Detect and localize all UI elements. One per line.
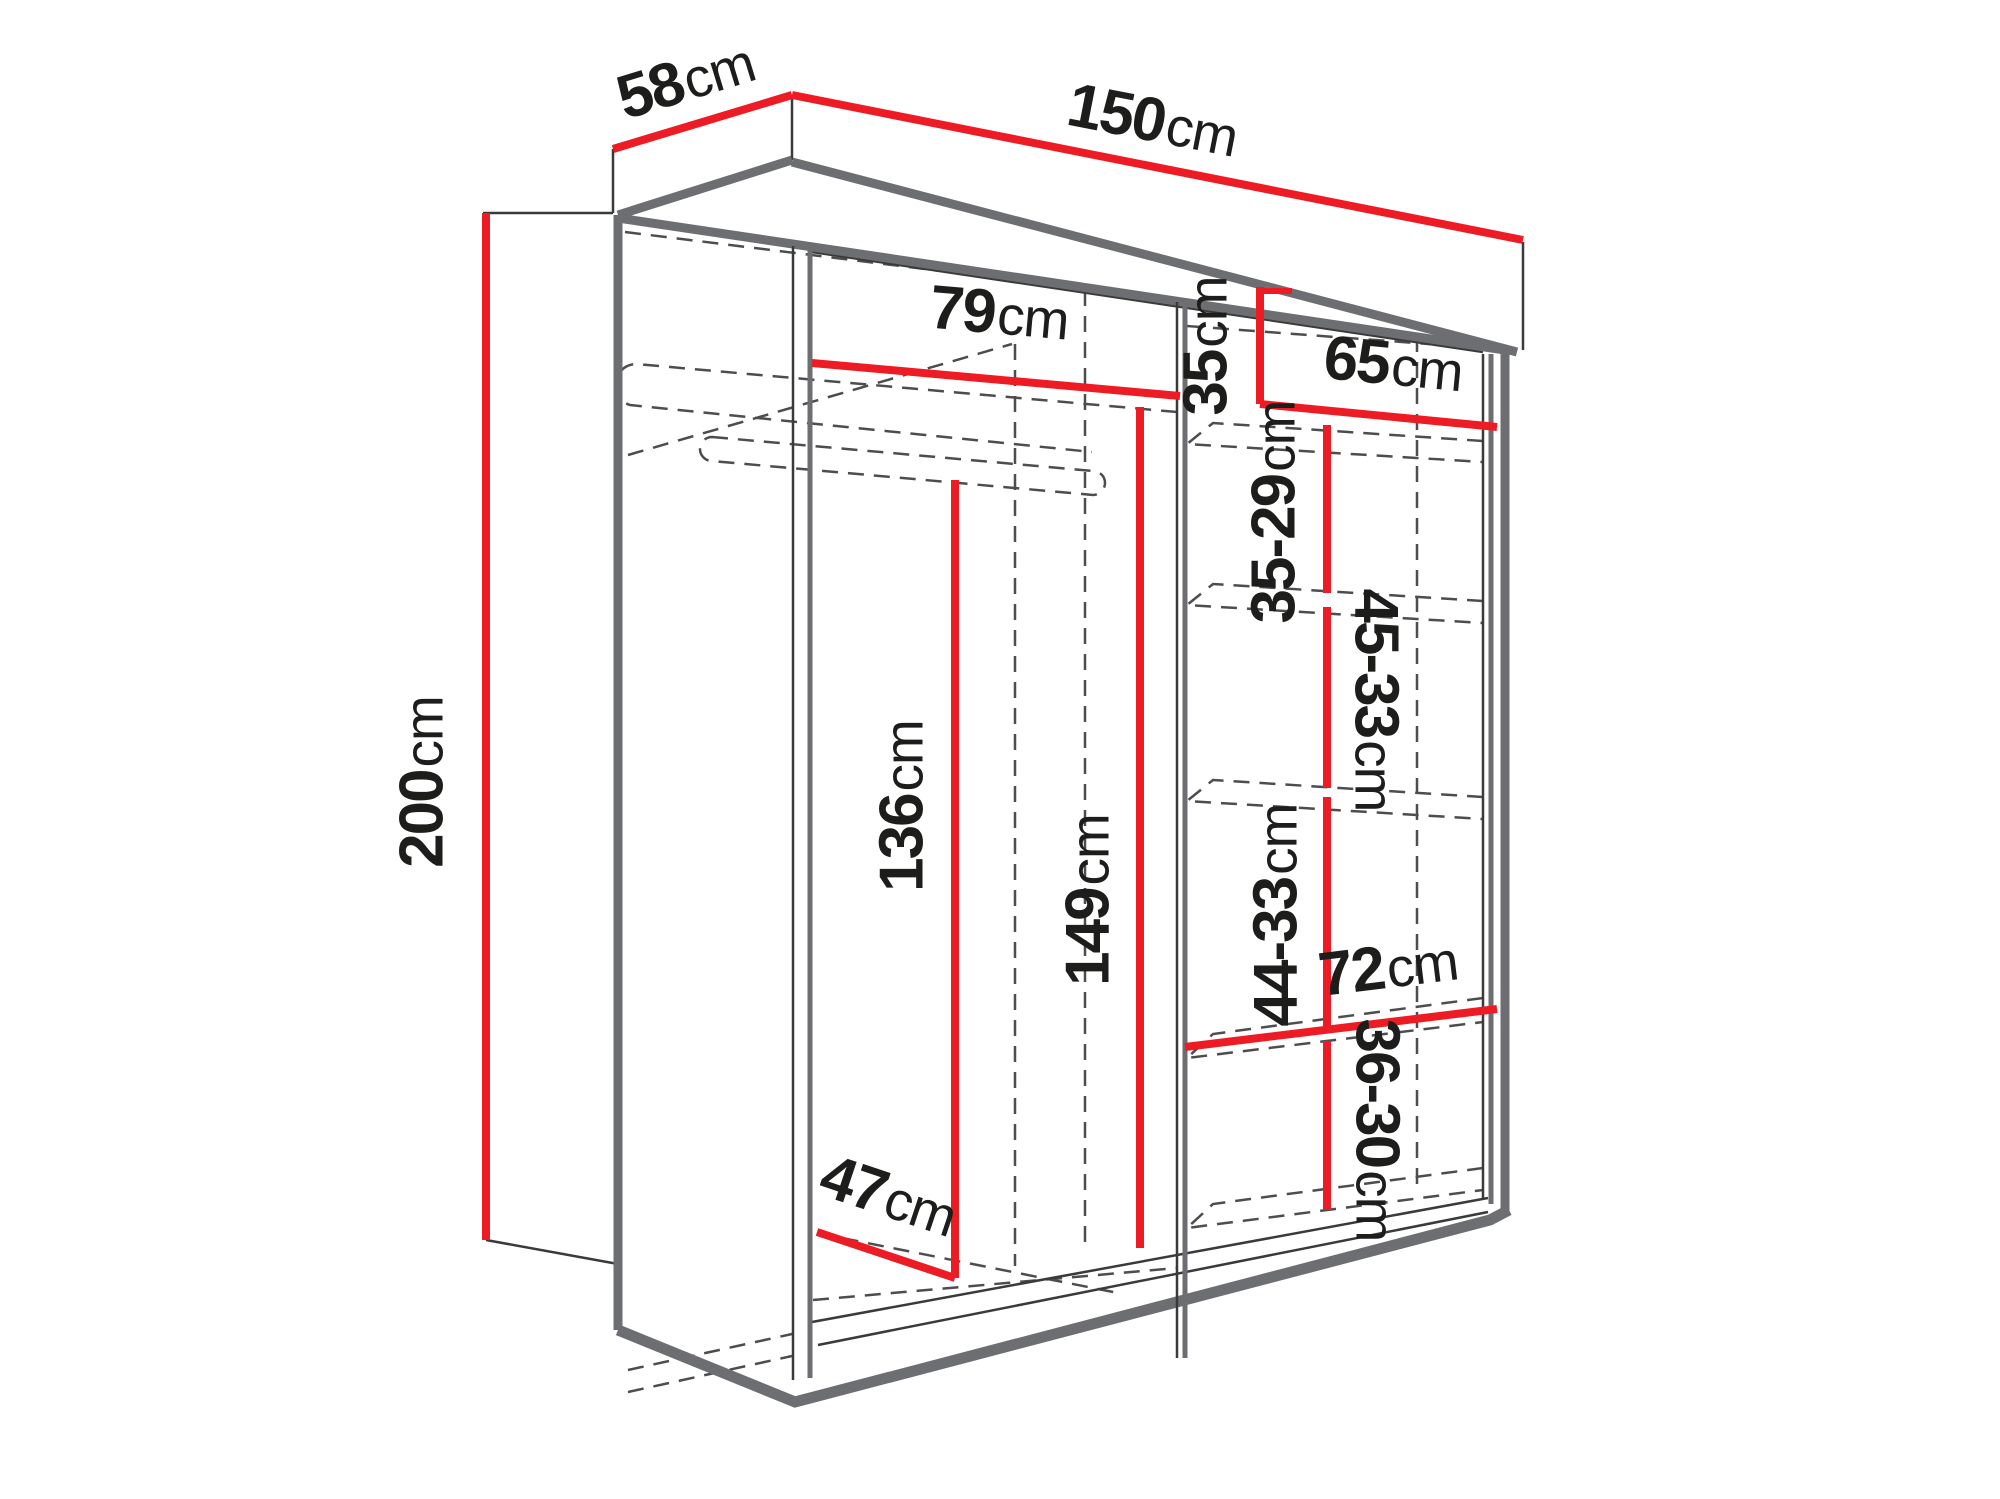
dimension-line-bottom-shelf-width — [1185, 1009, 1497, 1047]
right-floor-dashed — [1187, 1168, 1483, 1228]
cornice-left-bottom-edge — [618, 160, 792, 215]
hanging-rail-dashed — [700, 437, 1105, 495]
dimension-line-left-shelf-width — [812, 363, 1180, 396]
wardrobe-dimension-diagram: 58cm 150cm 200cm 79cm 35cm 65cm 35-29cm … — [0, 0, 2000, 1499]
dimension-label-right-gap-3: 44-33cm — [1242, 804, 1311, 1027]
dimension-label-depth-top: 58cm — [609, 26, 762, 133]
dimension-label-bottom-shelf-width: 72cm — [1315, 924, 1462, 1009]
right-shelf-2-dashed — [1187, 584, 1483, 623]
diagram-canvas: 58cm 150cm 200cm 79cm 35cm 65cm 35-29cm … — [0, 0, 2000, 1499]
dimension-label-right-gap-1: 35-29cm — [1240, 401, 1309, 624]
right-shelf-1-dashed — [1187, 423, 1483, 462]
dimension-labels: 58cm 150cm 200cm 79cm 35cm 65cm 35-29cm … — [388, 26, 1466, 1250]
floor-depth-edge-dashed — [817, 1233, 1118, 1293]
dimension-label-middle-inner-height: 149cm — [1054, 814, 1123, 986]
side-panel-bottom-edge — [486, 1240, 618, 1264]
right-shelf-3-dashed — [1187, 780, 1483, 819]
left-top-shelf-dashed — [615, 364, 1177, 452]
dimension-label-right-gap-2: 45-33cm — [1341, 589, 1410, 812]
dimension-label-right-top-gap: 35cm — [1172, 276, 1241, 415]
dimension-label-right-gap-4: 36-30cm — [1342, 1019, 1411, 1242]
dimension-label-height-left: 200cm — [388, 696, 457, 868]
dimension-label-left-inner-height: 136cm — [868, 720, 937, 892]
